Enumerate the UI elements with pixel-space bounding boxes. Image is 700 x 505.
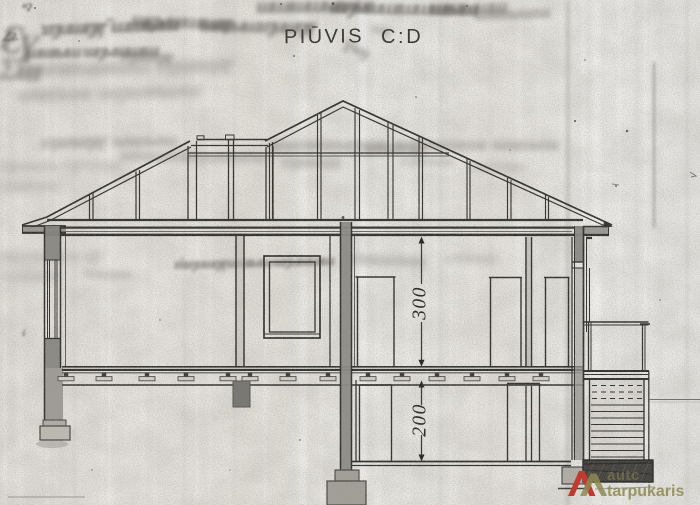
svg-text:autc: autc [607,467,640,484]
svg-text:tarpukaris: tarpukaris [607,483,684,500]
svg-text:300: 300 [410,286,431,320]
svg-text:C:D: C:D [381,26,423,48]
svg-text:PIŪVIS: PIŪVIS [284,24,364,48]
svg-text:200: 200 [410,403,431,436]
